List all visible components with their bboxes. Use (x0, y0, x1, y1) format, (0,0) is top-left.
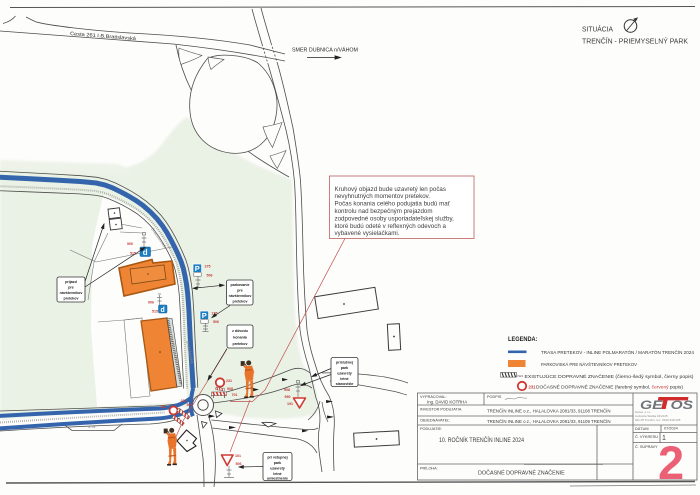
svg-text:P: P (195, 264, 200, 273)
svg-text:uzavretý: uzavretý (270, 467, 285, 471)
svg-text:DOČASNÉ DOPRAVNÉ ZNAČENIE (far: DOČASNÉ DOPRAVNÉ ZNAČENIE (farebný symbo… (536, 383, 683, 389)
svg-text:návštevníkov: návštevníkov (60, 291, 83, 295)
svg-text:ktoré budú odeté v reflexných: ktoré budú odeté v reflexných odevoch a (335, 223, 447, 230)
svg-text:906: 906 (127, 242, 133, 246)
svg-text:275: 275 (205, 265, 211, 269)
svg-text:Počas konania celého podujatia: Počas konania celého podujatia budú mať (335, 201, 451, 208)
svg-text:pretekov: pretekov (233, 342, 248, 346)
svg-text:908: 908 (284, 388, 290, 392)
svg-text:vybavené vysielačkami.: vybavené vysielačkami. (335, 230, 400, 237)
svg-text:park: park (274, 461, 282, 465)
svg-text:911 05 Trenčín, tel.: 0910 918: 911 05 Trenčín, tel.: 0910 918 205 (635, 418, 681, 422)
svg-text:101: 101 (235, 454, 241, 458)
svg-text:2: 2 (658, 436, 684, 489)
svg-text:Ing. DAVID KOTRHA: Ing. DAVID KOTRHA (427, 400, 467, 405)
svg-text:Č. VÝKRESU: Č. VÝKRESU (635, 434, 658, 439)
svg-text:pre: pre (237, 289, 243, 293)
svg-text:TRENČÍN - PRIEMYSELNÝ PARK: TRENČÍN - PRIEMYSELNÝ PARK (582, 37, 688, 46)
svg-text:PARKOVISKÁ PRE NÁVŠTEVNÍKOV PR: PARKOVISKÁ PRE NÁVŠTEVNÍKOV PRETEKOV (541, 361, 638, 367)
svg-text:TRENČÍN INLINE o.z., HALALOVKA: TRENČÍN INLINE o.z., HALALOVKA 2081/33, … (487, 419, 611, 424)
svg-text:EXISTUJÚCE DOPRAVNÉ ZNAČENIE (: EXISTUJÚCE DOPRAVNÉ ZNAČENIE (čierno-šed… (525, 373, 695, 379)
svg-text:príslušnej: príslušnej (336, 361, 353, 365)
svg-text:PRÍLOHA:: PRÍLOHA: (420, 467, 438, 471)
svg-text:umiestnenie: umiestnenie (267, 477, 288, 481)
svg-text:pretekov: pretekov (64, 297, 79, 301)
svg-text:701: 701 (232, 393, 238, 397)
svg-text:uzavretý: uzavretý (337, 372, 352, 376)
svg-text:P: P (202, 311, 207, 320)
svg-text:906: 906 (148, 301, 154, 305)
svg-text:515: 515 (130, 252, 136, 256)
svg-text:zodpovedné osoby usporiadateľs: zodpovedné osoby usporiadateľskej služby… (335, 215, 455, 222)
svg-text:10. ROČNÍK TRENČÍN INLINE 2024: 10. ROČNÍK TRENČÍN INLINE 2024 (439, 437, 525, 444)
svg-text:návštevníkov: návštevníkov (229, 294, 252, 298)
svg-text:990: 990 (285, 395, 291, 399)
svg-text:TRENČÍN INLINE o.z., HALALOVKA: TRENČÍN INLINE o.z., HALALOVKA 2081/33, … (487, 409, 611, 414)
svg-text:DÁTUM: DÁTUM (635, 427, 649, 431)
svg-text:SMER DUBNICA n/VÁHOM: SMER DUBNICA n/VÁHOM (292, 47, 358, 54)
svg-text:PODUJATIE:: PODUJATIE: (420, 427, 442, 431)
svg-text:INVESTOR PODUJATIA: INVESTOR PODUJATIA (420, 408, 462, 412)
svg-text:TRASA PRETEKOV - INLINE POLMAR: TRASA PRETEKOV - INLINE POLMARATÓN / MAR… (541, 349, 694, 355)
svg-text:LEGENDA:: LEGENDA: (508, 336, 538, 343)
svg-text:VYPRACOVAL:: VYPRACOVAL: (420, 395, 447, 399)
svg-text:506: 506 (207, 274, 213, 278)
svg-text:Č. SÚPRAVY: Č. SÚPRAVY (635, 444, 658, 449)
svg-text:kontrolu nad bezpečným prejazd: kontrolu nad bezpečným prejazdom (335, 208, 433, 215)
svg-text:stanovište: stanovište (336, 382, 354, 386)
svg-text:d: d (161, 307, 165, 314)
svg-text:príjazd: príjazd (65, 280, 77, 284)
svg-text:231: 231 (529, 384, 537, 389)
svg-text:nevyhnutných momentov pretekov: nevyhnutných momentov pretekov. (335, 193, 431, 200)
svg-text:506: 506 (187, 403, 193, 407)
svg-text:OBJEDNÁVATEĽ:: OBJEDNÁVATEĽ: (420, 419, 450, 423)
svg-text:231: 231 (226, 379, 232, 383)
svg-text:letné: letné (340, 377, 348, 381)
svg-text:konania: konania (233, 336, 248, 340)
svg-text:letné: letné (273, 472, 281, 476)
svg-text:pri vstupnej: pri vstupnej (267, 456, 287, 460)
svg-text:z dôvodu: z dôvodu (232, 329, 248, 333)
svg-text:park: park (341, 366, 349, 370)
svg-text:IS21: IS21 (518, 374, 524, 378)
svg-text:506: 506 (213, 320, 219, 324)
svg-text:SITUÁCIA: SITUÁCIA (582, 25, 613, 34)
svg-text:parkovanie: parkovanie (231, 283, 250, 287)
svg-text:pretekov: pretekov (233, 300, 248, 304)
svg-text:515: 515 (152, 310, 158, 314)
svg-text:908: 908 (227, 387, 233, 391)
svg-text:d=7a: d=7a (88, 425, 95, 429)
svg-text:Kruhový objazd bude uzavretý l: Kruhový objazd bude uzavretý len počas (335, 186, 446, 193)
svg-text:PODPIS: PODPIS (487, 395, 502, 399)
svg-text:pre: pre (68, 286, 74, 290)
svg-text:07/2024: 07/2024 (664, 427, 678, 431)
svg-text:191: 191 (287, 402, 293, 406)
svg-text:DOČASNÉ DOPRAVNÉ ZNAČENIE: DOČASNÉ DOPRAVNÉ ZNAČENIE (478, 470, 565, 477)
svg-text:506: 506 (236, 462, 242, 466)
svg-text:231: 231 (160, 405, 166, 409)
